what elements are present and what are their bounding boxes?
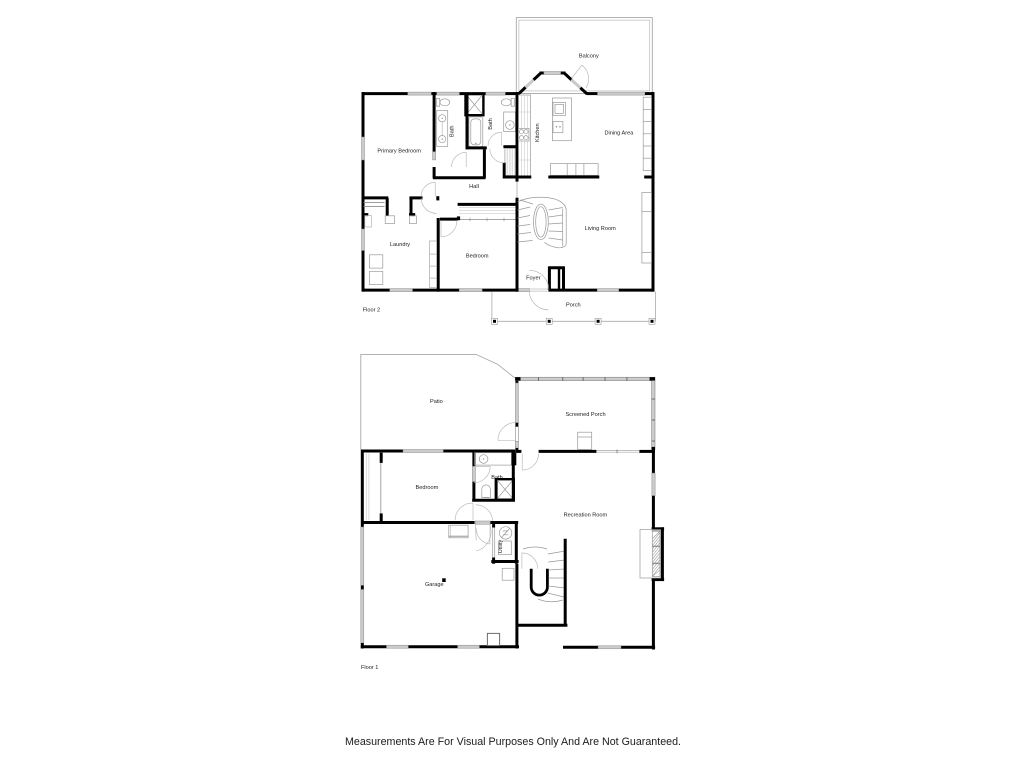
svg-text:Screened Porch: Screened Porch — [565, 412, 605, 418]
svg-text:Bedroom: Bedroom — [416, 485, 439, 491]
svg-text:Kitchen: Kitchen — [535, 123, 541, 142]
svg-text:Laundry: Laundry — [390, 242, 410, 248]
svg-text:Bedroom: Bedroom — [466, 254, 489, 260]
svg-text:Measurements Are For Visual Pu: Measurements Are For Visual Purposes Onl… — [345, 736, 681, 748]
svg-text:Dining Area: Dining Area — [604, 131, 634, 137]
svg-text:Floor 2: Floor 2 — [363, 308, 380, 314]
svg-text:Garage: Garage — [425, 582, 444, 588]
svg-text:Balcony: Balcony — [579, 53, 599, 59]
svg-text:Patio: Patio — [430, 399, 443, 405]
svg-text:Porch: Porch — [566, 303, 581, 309]
svg-text:Foyer: Foyer — [526, 276, 540, 282]
svg-text:Bath: Bath — [488, 118, 494, 130]
svg-text:Primary Bedroom: Primary Bedroom — [377, 148, 421, 154]
svg-text:Hall: Hall — [469, 184, 479, 190]
svg-text:Living Room: Living Room — [585, 226, 616, 232]
svg-text:Floor 1: Floor 1 — [361, 665, 378, 671]
svg-text:Bath: Bath — [449, 125, 455, 137]
svg-text:Recreation Room: Recreation Room — [564, 513, 608, 519]
